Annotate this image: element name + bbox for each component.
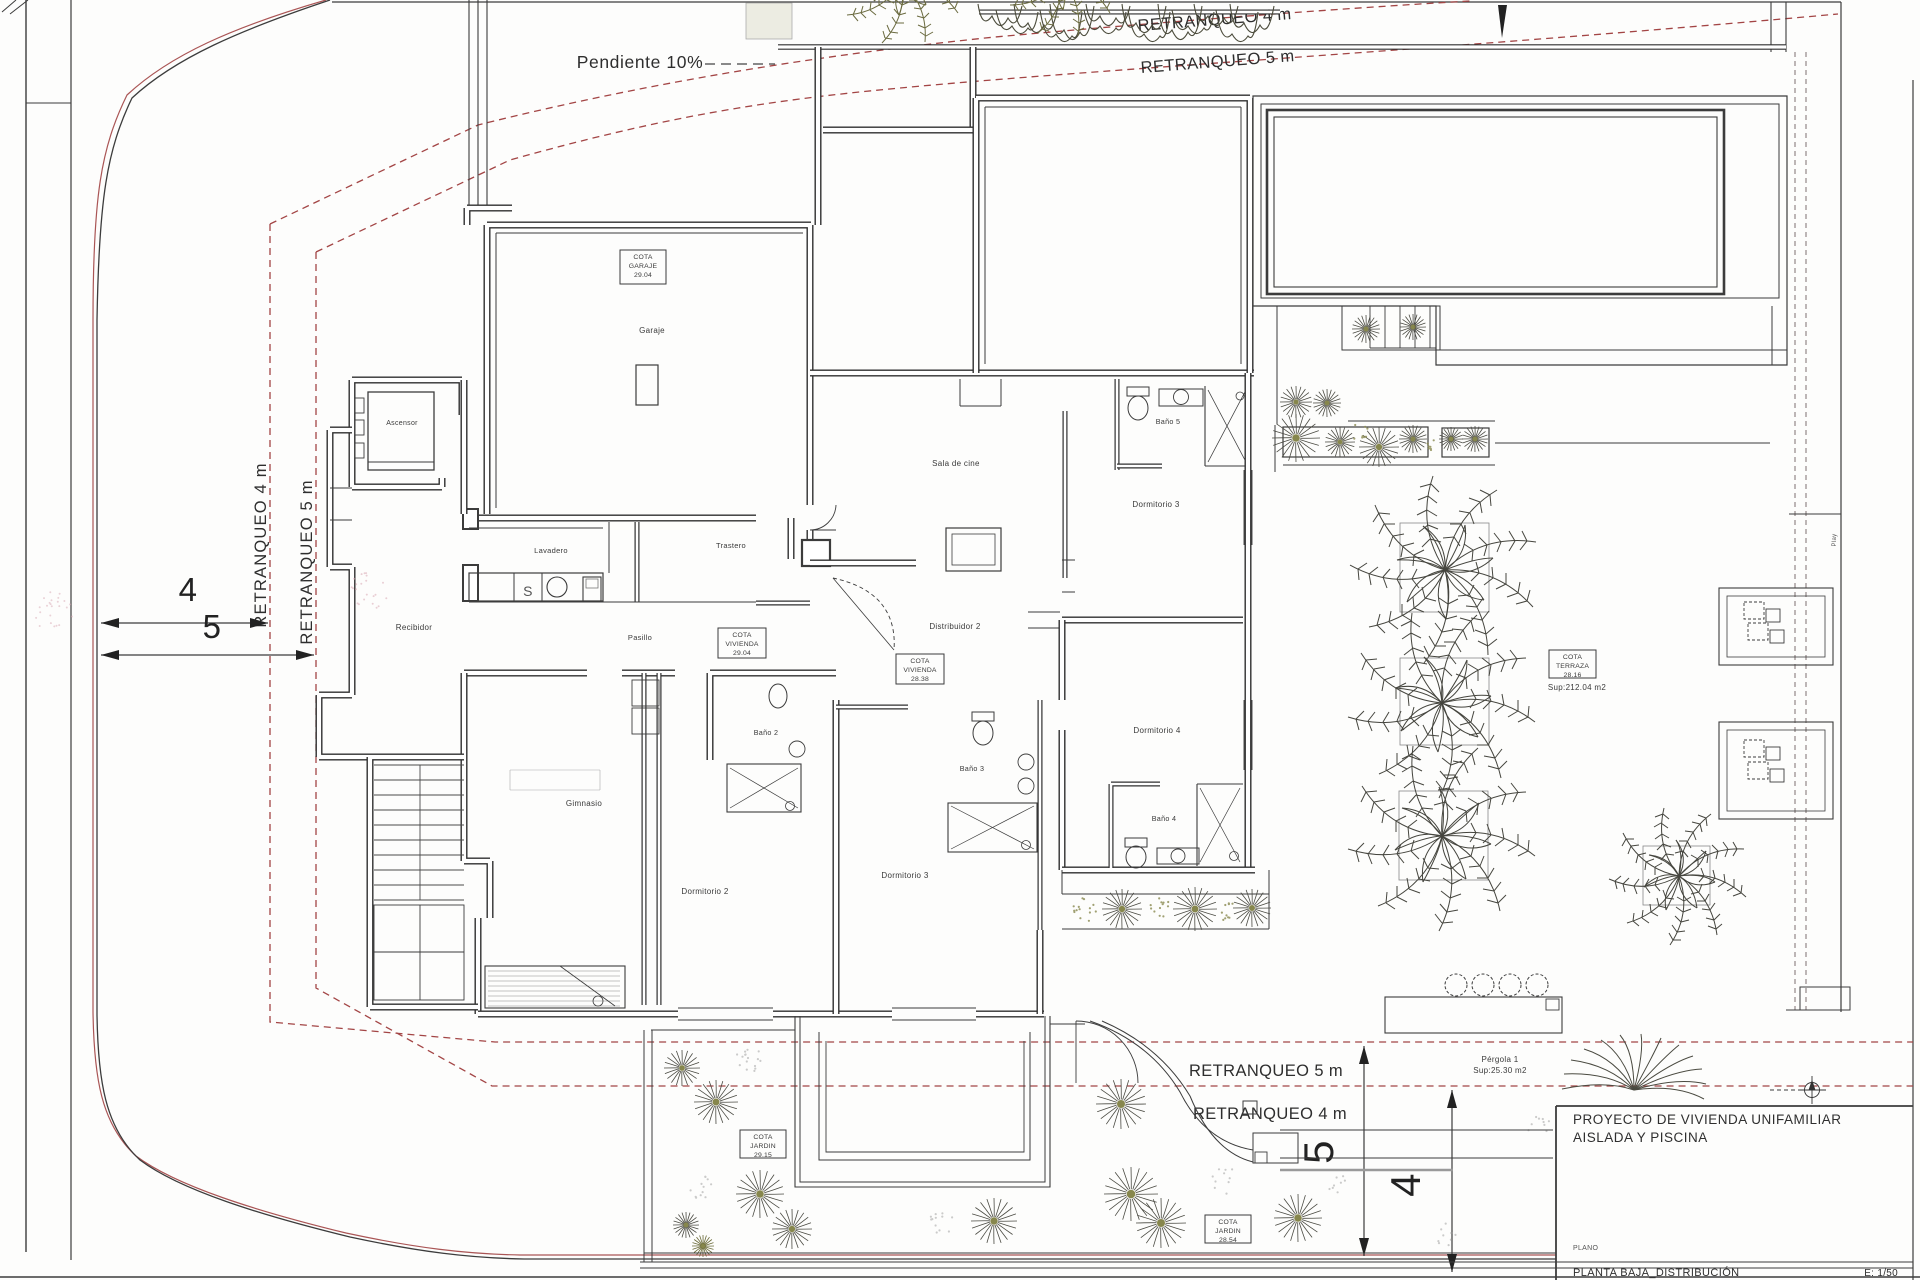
- svg-text:Sala de cine: Sala de cine: [932, 459, 980, 468]
- svg-text:RETRANQUEO 5 m: RETRANQUEO 5 m: [298, 479, 316, 644]
- svg-text:Gimnasio: Gimnasio: [566, 799, 602, 808]
- svg-text:RETRANQUEO 4 m: RETRANQUEO 4 m: [252, 462, 270, 627]
- svg-text:Baño 4: Baño 4: [1152, 814, 1177, 823]
- svg-text:Play: Play: [1832, 534, 1838, 547]
- svg-text:PLANO: PLANO: [1573, 1245, 1598, 1252]
- svg-text:Lavadero: Lavadero: [534, 546, 568, 555]
- svg-text:5: 5: [203, 608, 222, 645]
- svg-text:COTA: COTA: [1218, 1219, 1237, 1226]
- svg-text:Distribuidor 2: Distribuidor 2: [929, 622, 981, 631]
- svg-text:Pasillo: Pasillo: [628, 633, 652, 642]
- svg-text:4: 4: [1382, 1173, 1429, 1197]
- svg-text:28.38: 28.38: [911, 676, 929, 683]
- svg-text:COTA: COTA: [633, 254, 652, 261]
- svg-text:Ascensor: Ascensor: [386, 420, 418, 427]
- svg-text:Trastero: Trastero: [716, 541, 746, 550]
- svg-text:29.15: 29.15: [754, 1152, 772, 1159]
- svg-text:Garaje: Garaje: [639, 326, 665, 335]
- svg-text:5: 5: [1295, 1140, 1342, 1164]
- svg-text:COTA: COTA: [910, 658, 929, 665]
- svg-text:4: 4: [179, 571, 198, 608]
- svg-text:Dormitorio 3: Dormitorio 3: [1132, 500, 1179, 509]
- svg-text:COTA: COTA: [753, 1134, 772, 1141]
- svg-text:Dormitorio 3: Dormitorio 3: [881, 871, 928, 880]
- svg-text:TERRAZA: TERRAZA: [1556, 663, 1589, 670]
- svg-text:28.54: 28.54: [1219, 1237, 1237, 1244]
- svg-text:RETRANQUEO 4 m: RETRANQUEO 4 m: [1193, 1105, 1347, 1123]
- svg-text:Baño 3: Baño 3: [960, 764, 985, 773]
- svg-text:JARDIN: JARDIN: [750, 1143, 776, 1150]
- svg-text:RETRANQUEO 5 m: RETRANQUEO 5 m: [1189, 1062, 1343, 1080]
- svg-text:Sup:25.30 m2: Sup:25.30 m2: [1473, 1066, 1527, 1075]
- svg-text:Sup:212.04 m2: Sup:212.04 m2: [1548, 683, 1606, 692]
- svg-text:S: S: [523, 583, 533, 599]
- svg-text:JARDIN: JARDIN: [1215, 1228, 1241, 1235]
- svg-text:Baño 5: Baño 5: [1156, 417, 1181, 426]
- svg-text:PLANTA BAJA_DISTRIBUCIÓN: PLANTA BAJA_DISTRIBUCIÓN: [1573, 1266, 1740, 1279]
- svg-text:PROYECTO DE VIVIENDA UNIFAMIL: PROYECTO DE VIVIENDA UNIFAMILIAR: [1573, 1112, 1842, 1127]
- svg-text:Recibidor: Recibidor: [396, 623, 433, 632]
- svg-text:Dormitorio 2: Dormitorio 2: [681, 887, 728, 896]
- svg-text:COTA: COTA: [732, 632, 751, 639]
- svg-text:AISLADA Y PISCINA: AISLADA Y PISCINA: [1573, 1130, 1708, 1145]
- svg-text:Pérgola 1: Pérgola 1: [1482, 1055, 1519, 1064]
- svg-text:E: 1/50: E: 1/50: [1864, 1268, 1898, 1279]
- svg-text:29.04: 29.04: [733, 650, 751, 657]
- svg-text:COTA: COTA: [1563, 654, 1582, 661]
- svg-text:Baño 2: Baño 2: [754, 728, 779, 737]
- svg-text:VIVIENDA: VIVIENDA: [725, 641, 759, 648]
- svg-text:Pendiente 10%: Pendiente 10%: [577, 52, 704, 72]
- svg-text:28.16: 28.16: [1563, 672, 1581, 679]
- svg-text:VIVIENDA: VIVIENDA: [903, 667, 937, 674]
- svg-text:29.04: 29.04: [634, 272, 652, 279]
- svg-text:Dormitorio 4: Dormitorio 4: [1133, 726, 1180, 735]
- svg-text:GARAJE: GARAJE: [629, 263, 658, 270]
